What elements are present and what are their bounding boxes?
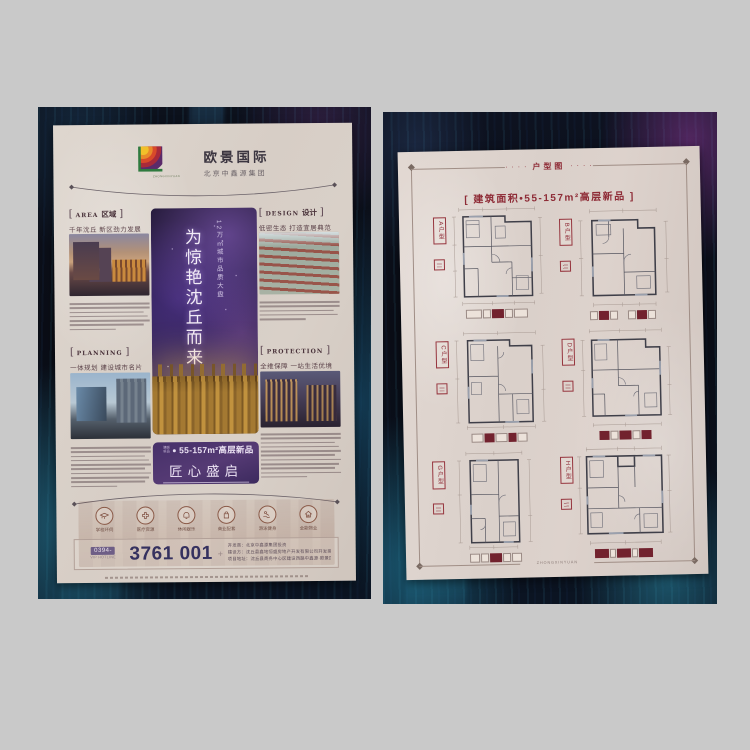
unit-position-strip [470,553,522,563]
plan-label: D户型 [561,339,575,367]
address-line: 项目地址：沈丘县商务中心区建设西路中鑫源·欧景国际 [228,556,331,564]
area-code-badge: 0394- [91,547,115,555]
plan-label: B户型 [559,219,573,246]
hotline-label: VIP HOTLINE [90,556,116,560]
design-paragraph [260,301,340,323]
plan-label: A户型 [433,217,447,244]
plan-area-tag [433,503,444,514]
hero-panel: 12万㎡城市品质大盘 为惊艳沈丘而来 [151,208,259,435]
floorplan-H: H户型 [560,444,679,568]
section-planning-header: [ Planning ] [70,347,129,359]
plan-area-tag [561,499,572,510]
brand-logo-icon [136,144,164,176]
section-design-title: Design [266,208,300,218]
hero-city-skyline [152,376,259,435]
developer-info: 开发商：北京中鑫源集团投资 建设方：沈丘县鑫地恒盛房地产开发有限公司开发建设 项… [228,542,331,563]
floorplan-B: B户型 [559,206,678,330]
phone-number: 3761 001 [129,542,212,565]
section-area-subtitle: 千年沈丘 新区劲力发展 [69,224,141,235]
floorplan-header: 户型图 [532,161,565,173]
section-design-subtitle: 低密生态 打造宜居典范 [259,222,331,233]
amenity-shopping: 商业配套 [207,506,247,537]
section-planning-title: Planning [77,348,123,358]
hero-eyebrow: 12万㎡城市品质大盘 [213,220,224,299]
floorplan-drawing [449,205,547,307]
area-photo [69,233,150,296]
plan-label: C户型 [436,341,450,369]
amenity-leisure: 休闲娱乐 [166,506,206,537]
section-protection-subtitle: 全维保障 一站生活优境 [260,360,332,371]
section-design-header: [ Design 设计 ] [259,207,324,219]
hero-title: 为惊艳沈丘而来 [179,228,205,368]
product-slogan: 匠心盛启 [163,459,249,483]
plan-area-tag [562,381,573,392]
area-paragraph [70,302,150,333]
section-protection-title: Protection [267,346,324,356]
shopping-icon [218,506,236,524]
leisure-icon [177,506,195,524]
product-prefix-bottom: 新品 [164,450,171,454]
amenity-school: 学校环伺 [84,507,124,538]
amenity-property: 全能物业 [288,505,328,536]
section-area-header: [ Area 区域 ] [69,209,123,220]
plan-label: G户型 [432,461,446,489]
section-area-title: Area [76,210,99,220]
plan-area-tag [434,259,445,270]
flyer-mockup-canvas: ZHONGXINYUAN 欧景国际 北京中鑫源集团 [ Area 区域 ] 千年… [0,0,750,750]
floorplan-D: D户型 [561,326,680,450]
right-poster-background: · · · · 户型图 · · · · ZHONGXINYUAN [ 建筑面积•… [383,112,717,604]
brand-company: 北京中鑫源集团 [204,168,270,179]
planning-photo [70,372,151,439]
school-icon [95,507,113,525]
logo-caption: ZHONGXINYUAN [153,175,180,178]
floorplan-drawing [577,326,675,428]
property-icon [299,505,317,523]
floorplan-C: C户型 [435,329,554,453]
medical-icon [136,506,154,524]
left-flyer-page: ZHONGXINYUAN 欧景国际 北京中鑫源集团 [ Area 区域 ] 千年… [53,123,356,584]
fitness-icon [259,505,277,523]
floorplan-drawing [575,206,673,308]
design-photo [259,232,340,295]
planning-paragraph [71,446,151,490]
protection-list [261,433,341,481]
top-arc-divider [66,181,341,201]
unit-position-strip [590,310,656,320]
floorplan-G: G户型 [432,449,551,573]
amenities-row: 学校环伺 医疗资源 休闲娱乐 [84,505,328,538]
plan-area-tag [436,383,447,394]
disclaimer-line [105,575,309,579]
floorplan-drawing [451,329,549,431]
amenity-medical: 医疗资源 [125,506,165,537]
brand-block: ZHONGXINYUAN 欧景国际 北京中鑫源集团 [53,143,352,183]
right-floorplan-page: · · · · 户型图 · · · · ZHONGXINYUAN [ 建筑面积•… [398,146,709,580]
floorplan-drawing [576,445,674,547]
protection-photo [260,371,340,428]
floorplan-drawing [448,449,546,551]
divider-plus: + [218,548,223,558]
bullet-dot [173,449,176,452]
unit-position-strip [466,309,528,319]
unit-position-strip [471,433,527,443]
plan-label: H户型 [560,457,574,485]
contact-bar: 0394- VIP HOTLINE 3761 001 + 开发商：北京中鑫源集团… [74,537,339,570]
section-planning-subtitle: 一体规划 建设城市名片 [70,362,142,373]
product-box: 建面 新品 55-157m²高层新品 匠心盛启 [153,442,259,485]
left-poster-background: ZHONGXINYUAN 欧景国际 北京中鑫源集团 [ Area 区域 ] 千年… [38,107,371,599]
unit-position-strip [595,548,653,558]
section-protection-header: [ Protection ] [260,345,330,357]
product-range: 55-157m²高层新品 [179,444,254,457]
amenity-fitness: 游泳健身 [248,505,288,536]
floorplan-A: A户型 [433,205,552,329]
unit-position-strip [599,430,651,440]
plan-area-tag [560,261,571,272]
brand-name: 欧景国际 [203,145,269,166]
